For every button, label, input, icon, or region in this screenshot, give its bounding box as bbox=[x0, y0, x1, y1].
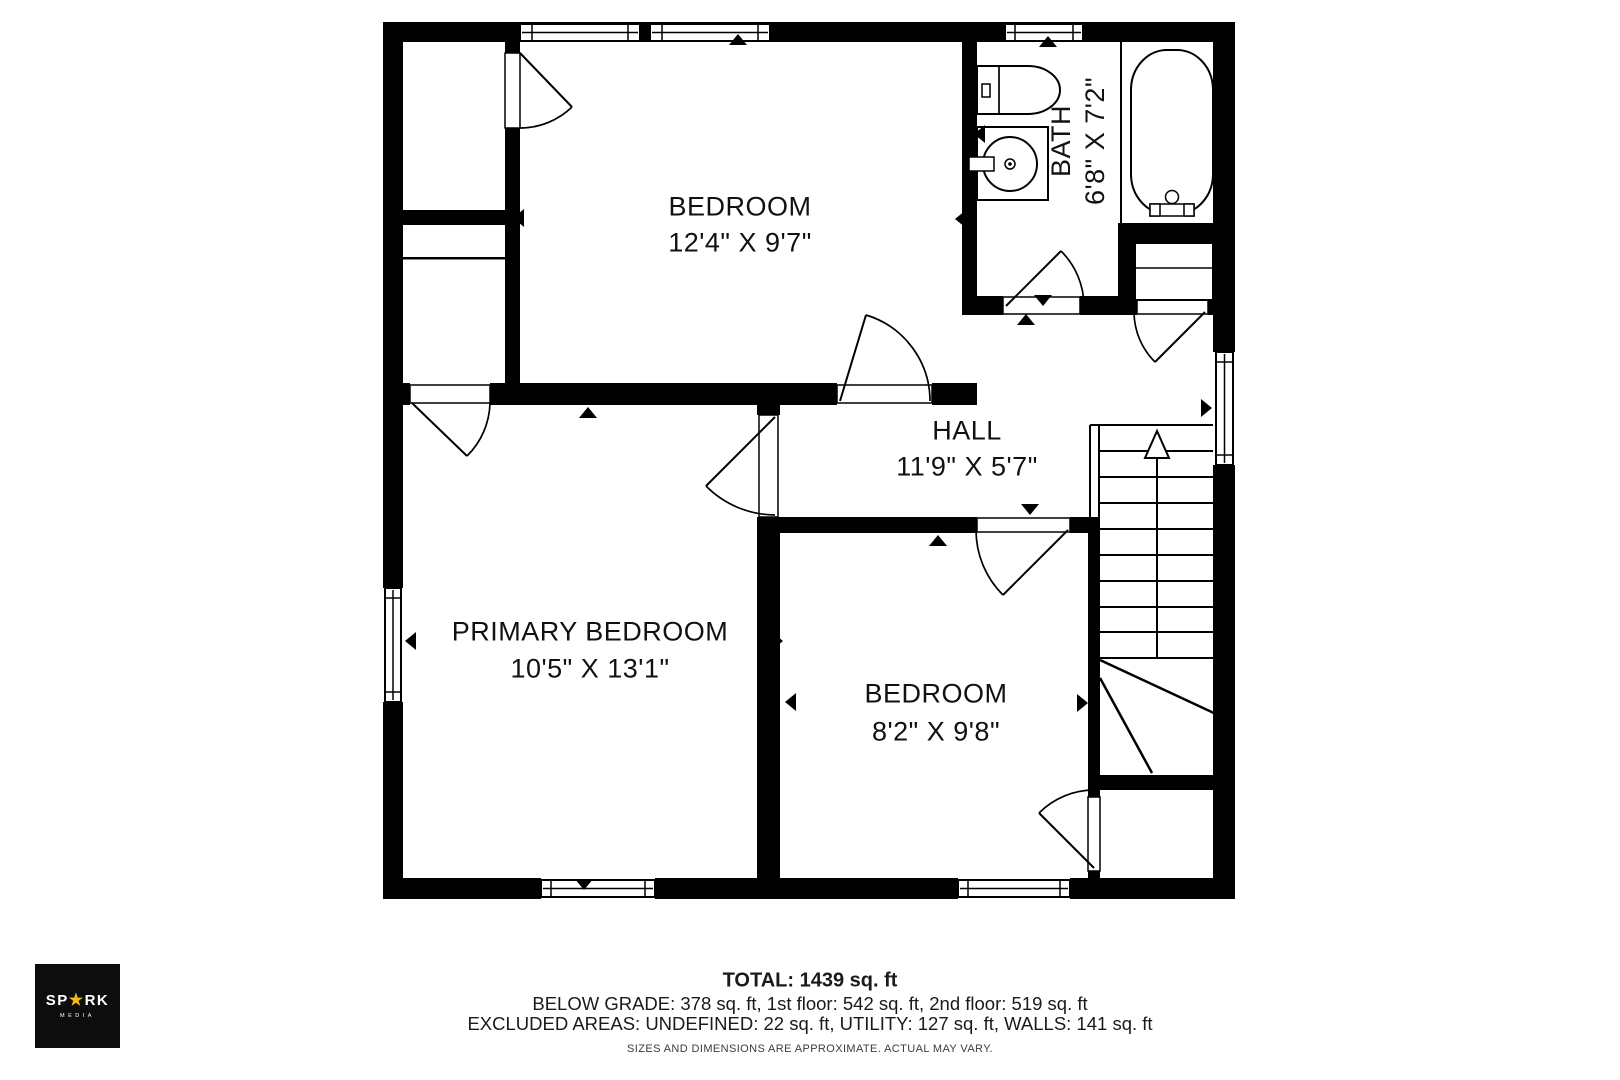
logo-brand-text: SP★RK bbox=[46, 993, 110, 1009]
door-bedroom-bottom bbox=[976, 518, 1070, 595]
spark-media-logo: SP★RK MEDIA bbox=[35, 964, 120, 1048]
logo-text-left: SP bbox=[46, 992, 69, 1009]
stairs-winder-line bbox=[1100, 660, 1216, 714]
room-label-primary-bedroom: PRIMARY BEDROOM bbox=[452, 617, 729, 648]
total-area-text: TOTAL: 1439 sq. ft bbox=[723, 970, 898, 993]
window-bottom-primary bbox=[541, 880, 655, 897]
stairs-up-arrow-icon bbox=[1145, 431, 1169, 458]
door-bedroom-top-closet bbox=[505, 53, 572, 128]
room-dims-hall: 11'9" X 5'7" bbox=[896, 452, 1038, 483]
room-label-bedroom-top: BEDROOM bbox=[668, 192, 811, 223]
excluded-areas-text: EXCLUDED AREAS: UNDEFINED: 22 sq. ft, UT… bbox=[467, 1013, 1152, 1035]
floor-plan-drawing bbox=[0, 0, 1620, 1080]
room-label-bath-block: BATH 6'8" X 7'2" bbox=[1044, 77, 1112, 205]
window-left bbox=[385, 588, 401, 702]
door-bedroom-top bbox=[837, 315, 932, 403]
logo-text-right: RK bbox=[85, 992, 110, 1009]
window-top-left bbox=[520, 24, 640, 41]
room-dims-bedroom-top: 12'4" X 9'7" bbox=[668, 228, 812, 259]
window-bottom-bedroom bbox=[958, 880, 1070, 897]
tub-faucet-icon bbox=[1166, 191, 1179, 204]
stairs-winder-line bbox=[1100, 678, 1152, 773]
door-primary-closet bbox=[410, 385, 490, 456]
logo-star-icon: ★ bbox=[69, 992, 85, 1009]
floor-plan-page: BEDROOM 12'4" X 9'7" BATH 6'8" X 7'2" HA… bbox=[0, 0, 1620, 1080]
window-bath bbox=[1005, 24, 1083, 41]
door-primary-hall bbox=[706, 415, 778, 517]
window-right bbox=[1216, 352, 1233, 465]
staircase bbox=[1090, 425, 1216, 773]
room-label-hall: HALL bbox=[932, 416, 1002, 447]
door-bedroom-bottom-closet bbox=[1039, 790, 1100, 871]
door-hall-cabinet bbox=[1134, 297, 1208, 362]
room-dims-bedroom-bottom: 8'2" X 9'8" bbox=[872, 717, 1000, 748]
room-label-bedroom-bottom: BEDROOM bbox=[864, 679, 1007, 710]
floor-breakdown-text: BELOW GRADE: 378 sq. ft, 1st floor: 542 … bbox=[532, 993, 1087, 1015]
room-label-bath: BATH bbox=[1044, 77, 1078, 205]
disclaimer-text: SIZES AND DIMENSIONS ARE APPROXIMATE. AC… bbox=[627, 1043, 993, 1055]
hall-cabinet bbox=[1135, 243, 1213, 300]
closet-shelf bbox=[403, 257, 505, 260]
room-dims-primary-bedroom: 10'5" X 13'1" bbox=[510, 654, 669, 685]
logo-subtitle-text: MEDIA bbox=[60, 1013, 95, 1019]
window-top-right bbox=[650, 24, 770, 41]
bathtub bbox=[1131, 50, 1213, 216]
room-dims-bath: 6'8" X 7'2" bbox=[1078, 77, 1112, 205]
